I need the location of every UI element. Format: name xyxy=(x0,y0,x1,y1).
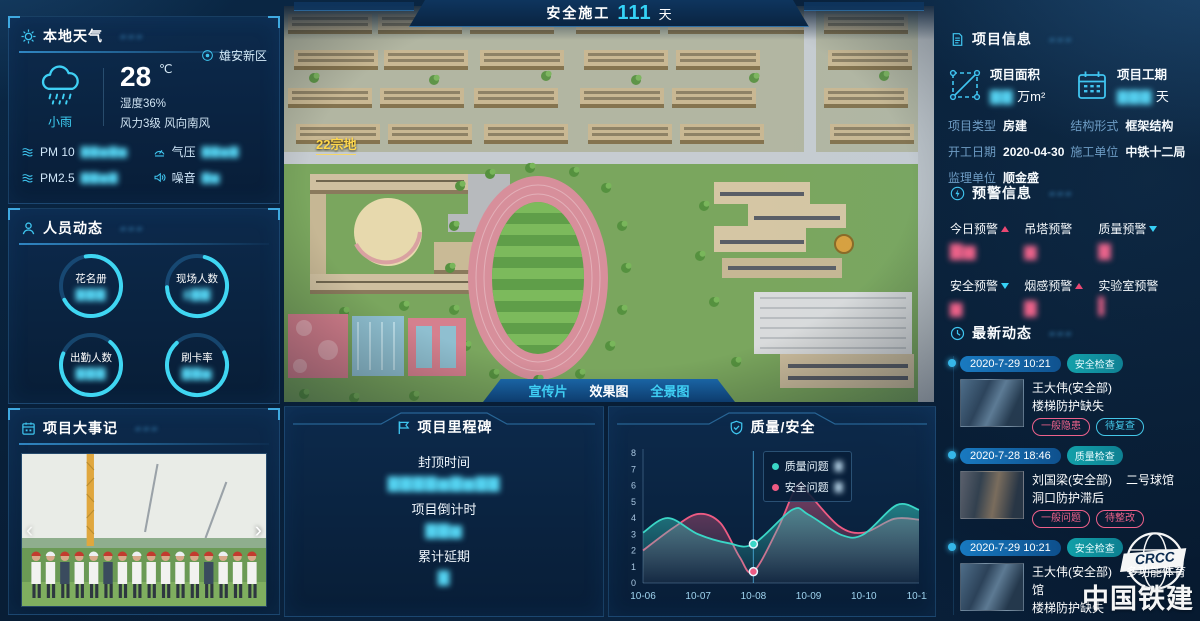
warning-item: 实验室预警▌ xyxy=(1098,277,1180,318)
svg-text:3: 3 xyxy=(631,529,636,539)
update-date: 2020-7-28 18:46 xyxy=(960,448,1061,464)
panel-warnings: 预警信息 ▰▰▰ 今日预警▇▆吊塔预警▆质量预警▇安全预警▆烟感预警▇实验室预警… xyxy=(938,174,1192,312)
lightning-icon xyxy=(950,186,965,201)
field-label: 项目类型 xyxy=(948,117,996,134)
panel-milestone: 项目里程碑 封顶时间▇▇▇▇▆▇▆▇▇项目倒计时▇▇▆累计延期▇ xyxy=(284,406,604,617)
warning-value-masked: ▇▆ xyxy=(950,241,1024,261)
update-type-badge: 质量检查 xyxy=(1067,446,1123,465)
sun-icon xyxy=(21,29,36,44)
haze-icon xyxy=(21,145,34,158)
svg-text:10-08: 10-08 xyxy=(741,591,767,602)
project-field: 施工单位中铁十二局 xyxy=(1070,143,1185,160)
field-value: 框架结构 xyxy=(1125,117,1173,134)
region-chip[interactable]: 雄安新区 xyxy=(201,47,267,64)
personnel-ring: 刷卡率▇▇▆ xyxy=(162,330,232,400)
tooltip-row: 质量问题▇ xyxy=(772,458,844,474)
project-field: 结构形式框架结构 xyxy=(1070,117,1185,134)
personnel-ring: 花名册▇▇▇ xyxy=(56,251,126,321)
milestone-value-masked: ▇▇▇▇▆▇▆▇▇ xyxy=(388,474,501,492)
warning-value-masked: ▇ xyxy=(1098,241,1180,261)
tooltip-value-masked: ▇ xyxy=(835,482,844,493)
project-stat: 项目工期▇▇▇ 天 xyxy=(1075,64,1188,105)
tooltip-row: 安全问题▇ xyxy=(772,479,844,495)
panel-quality-safety: 质量/安全 01234567810-0610-0710-0810-0910-10… xyxy=(608,406,936,617)
svg-text:1: 1 xyxy=(631,562,636,572)
field-label: 开工日期 xyxy=(948,143,996,160)
tag-badge: 一般隐患 xyxy=(1032,418,1090,436)
milestone-value-masked: ▇ xyxy=(438,568,451,586)
personnel-rings: 花名册▇▇▇现场人数▮▇▇出勤人数▇▇▇刷卡率▇▇▆ xyxy=(9,251,279,400)
timeline-dot xyxy=(948,451,956,459)
ring-value-masked: ▇▇▇ xyxy=(76,366,107,380)
panel-title: 本地天气 xyxy=(43,26,103,46)
calendar-page-icon xyxy=(21,421,36,436)
svg-text:5: 5 xyxy=(631,497,636,507)
milestone-item: 累计延期▇ xyxy=(418,546,470,586)
carousel-next-arrow[interactable]: › xyxy=(255,519,262,541)
warning-label: 安全预警 xyxy=(950,277,998,294)
update-date: 2020-7-29 10:21 xyxy=(960,540,1061,556)
metric-value-masked: ▇▆ xyxy=(202,171,221,184)
view-button-全景图[interactable]: 全景图 xyxy=(651,381,690,400)
field-label: 施工单位 xyxy=(1070,143,1118,160)
project-stats: 项目面积▇▇ 万m²项目工期▇▇▇ 天 xyxy=(938,54,1192,105)
field-value: 2020-04-30 xyxy=(1003,145,1064,159)
update-type-badge: 安全检查 xyxy=(1067,354,1123,373)
metric-label: PM2.5 xyxy=(40,171,75,185)
ring-value-masked: ▇▇▇ xyxy=(76,287,107,301)
svg-text:10-06: 10-06 xyxy=(630,591,656,602)
ring-value-masked: ▇▇▆ xyxy=(182,366,213,380)
ring-label: 出勤人数 xyxy=(70,350,112,365)
tag-badge: 待复查 xyxy=(1096,418,1144,436)
pressure-icon xyxy=(153,145,166,158)
legend-label: 质量问题 xyxy=(785,458,829,474)
calendar-icon xyxy=(1075,68,1109,102)
weather-metric: 噪音▇▆ xyxy=(153,169,267,186)
warning-label: 吊塔预警 xyxy=(1024,220,1072,237)
weather-metrics: PM 10▇▇▆▇▆气压▇▇▆▇PM2.5▇▇▆▇噪音▇▆ xyxy=(9,131,279,186)
project-field: 开工日期2020-04-30 xyxy=(948,143,1064,160)
safe-days-label: 安全施工 xyxy=(546,3,610,23)
stat-unit: 天 xyxy=(1152,89,1169,104)
update-issue: 洞口防护滞后 xyxy=(1032,489,1174,507)
shield-check-icon xyxy=(729,420,744,435)
milestone-label: 封顶时间 xyxy=(418,452,470,471)
field-label: 结构形式 xyxy=(1070,117,1118,134)
tooltip-value-masked: ▇ xyxy=(835,461,844,472)
weather-condition: 小雨 xyxy=(17,113,103,130)
project-field: 项目类型房建 xyxy=(948,117,1064,134)
warning-label: 质量预警 xyxy=(1098,220,1146,237)
svg-text:7: 7 xyxy=(631,464,636,474)
update-place: 二号球馆 xyxy=(1126,473,1174,487)
document-icon xyxy=(950,32,965,47)
update-entry[interactable]: 2020-7-28 18:46质量检查刘国梁(安全部)二号球馆洞口防护滞后一般问… xyxy=(946,446,1192,528)
aerial-view[interactable]: 22宗地 宣传片效果图全景图 xyxy=(284,6,934,402)
legend-label: 安全问题 xyxy=(785,479,829,495)
svg-text:10-09: 10-09 xyxy=(796,591,822,602)
ring-label: 花名册 xyxy=(75,271,107,286)
top-banner: 安全施工 111 天 xyxy=(284,0,934,26)
panel-title: 人员动态 xyxy=(43,218,103,238)
flag-icon xyxy=(396,420,411,435)
safe-days-value: 111 xyxy=(617,2,651,25)
chart-tooltip: 质量问题▇安全问题▇ xyxy=(763,451,853,502)
land-parcel-label: 22宗地 xyxy=(316,134,356,155)
location-pin-icon xyxy=(201,49,214,62)
metric-value-masked: ▇▇▆▇ xyxy=(81,171,119,184)
personnel-ring: 出勤人数▇▇▇ xyxy=(56,330,126,400)
legend-dot xyxy=(772,484,779,491)
svg-text:10-10: 10-10 xyxy=(851,591,877,602)
safe-days-unit: 天 xyxy=(659,4,672,23)
milestone-label: 项目倒计时 xyxy=(411,499,476,518)
panel-personnel: 人员动态 ▰▰▰ 花名册▇▇▇现场人数▮▇▇出勤人数▇▇▇刷卡率▇▇▆ xyxy=(8,208,280,404)
panel-title: 质量/安全 xyxy=(751,417,816,437)
person-icon xyxy=(21,221,36,236)
update-thumbnail[interactable] xyxy=(960,563,1024,611)
view-button-效果图[interactable]: 效果图 xyxy=(589,381,628,400)
temperature-value: 28 xyxy=(120,61,151,92)
panel-title: 最新动态 xyxy=(972,323,1032,343)
aerial-render xyxy=(284,6,934,402)
svg-text:10-11: 10-11 xyxy=(907,591,927,602)
crcc-logo: CRCC 中国铁建 xyxy=(1082,526,1200,618)
wind: 风力3级 风向南风 xyxy=(120,115,210,131)
milestone-label: 累计延期 xyxy=(418,546,470,565)
svg-text:8: 8 xyxy=(631,448,636,458)
warning-value-masked: ▆ xyxy=(1024,241,1098,261)
metric-label: 噪音 xyxy=(172,169,196,186)
carousel-prev-arrow[interactable]: ‹ xyxy=(26,519,33,541)
stat-value-masked: ▇▇▇ xyxy=(1117,88,1152,104)
view-button-宣传片[interactable]: 宣传片 xyxy=(528,381,567,400)
update-person: 王大伟(安全部) xyxy=(1032,381,1112,395)
stat-unit: 万m² xyxy=(1014,89,1046,104)
panel-title: 项目大事记 xyxy=(43,418,118,438)
update-person: 刘国梁(安全部) xyxy=(1032,473,1112,487)
legend-dot xyxy=(772,463,779,470)
warning-item: 安全预警▆ xyxy=(950,277,1024,318)
milestone-list: 封顶时间▇▇▇▇▆▇▆▇▇项目倒计时▇▇▆累计延期▇ xyxy=(285,445,603,586)
clock-icon xyxy=(950,326,965,341)
warning-label: 今日预警 xyxy=(950,220,998,237)
stat-value-masked: ▇▇ xyxy=(990,88,1014,104)
warning-grid: 今日预警▇▆吊塔预警▆质量预警▇安全预警▆烟感预警▇实验室预警▌ xyxy=(938,208,1192,318)
update-date: 2020-7-29 10:21 xyxy=(960,356,1061,372)
metric-label: PM 10 xyxy=(40,145,75,159)
ring-label: 刷卡率 xyxy=(181,350,213,365)
update-entry[interactable]: 2020-7-29 10:21安全检查王大伟(安全部)楼梯防护缺失一般隐患待复查 xyxy=(946,354,1192,436)
field-value: 房建 xyxy=(1003,117,1027,134)
rain-cloud-icon xyxy=(37,93,83,110)
project-stat: 项目面积▇▇ 万m² xyxy=(948,64,1061,105)
stat-label: 项目工期 xyxy=(1117,64,1169,83)
trend-up-icon xyxy=(1075,283,1083,289)
field-value: 中铁十二局 xyxy=(1125,143,1185,160)
metric-value-masked: ▇▇▆▇▆ xyxy=(81,145,128,158)
warning-item: 质量预警▇ xyxy=(1098,220,1180,261)
group-photo xyxy=(22,454,266,606)
svg-text:4: 4 xyxy=(631,513,636,523)
ring-value-masked: ▮▇▇ xyxy=(183,287,211,301)
update-issue: 楼梯防护缺失 xyxy=(1032,397,1144,415)
area-icon xyxy=(948,68,982,102)
panel-title: 项目信息 xyxy=(972,29,1032,49)
update-thumbnail[interactable] xyxy=(960,471,1024,519)
stat-label: 项目面积 xyxy=(990,64,1045,83)
svg-text:2: 2 xyxy=(631,546,636,556)
milestone-photo[interactable]: ‹ › xyxy=(21,453,267,607)
weather-metric: 气压▇▇▆▇ xyxy=(153,143,267,160)
crcc-chinese-name: 中国铁建 xyxy=(1082,577,1194,616)
humidity: 湿度36% xyxy=(120,95,210,111)
warning-item: 今日预警▇▆ xyxy=(950,220,1024,261)
weather-metric: PM 10▇▇▆▇▆ xyxy=(21,143,153,160)
panel-title: 预警信息 xyxy=(972,183,1032,203)
panel-project-events: 项目大事记 ▰▰▰ ‹ › xyxy=(8,408,280,615)
view-switch-bar: 宣传片效果图全景图 xyxy=(483,379,735,402)
panel-title: 项目里程碑 xyxy=(418,417,493,437)
milestone-item: 封顶时间▇▇▇▇▆▇▆▇▇ xyxy=(388,452,501,492)
metric-label: 气压 xyxy=(172,143,196,160)
region-label: 雄安新区 xyxy=(219,47,267,64)
trend-down-icon xyxy=(1149,226,1157,232)
timeline-dot xyxy=(948,359,956,367)
weather-metric: PM2.5▇▇▆▇ xyxy=(21,169,153,186)
svg-text:10-07: 10-07 xyxy=(685,591,711,602)
warning-label: 烟感预警 xyxy=(1024,277,1072,294)
personnel-ring: 现场人数▮▇▇ xyxy=(162,251,232,321)
milestone-item: 项目倒计时▇▇▆ xyxy=(411,499,476,539)
update-thumbnail[interactable] xyxy=(960,379,1024,427)
panel-project-info: 项目信息 ▰▰▰ 项目面积▇▇ 万m²项目工期▇▇▇ 天 项目类型房建结构形式框… xyxy=(938,20,1192,170)
trend-down-icon xyxy=(1001,283,1009,289)
warning-item: 烟感预警▇ xyxy=(1024,277,1098,318)
milestone-value-masked: ▇▇▆ xyxy=(425,521,463,539)
dashboard: 安全施工 111 天 xyxy=(0,0,1200,621)
svg-text:0: 0 xyxy=(631,578,636,588)
haze-icon xyxy=(21,171,34,184)
temperature-unit: ℃ xyxy=(159,62,172,76)
panel-local-weather: 本地天气 ▰▰▰ 雄安新区 小雨 28 ℃ 湿度36% 风力3级 风向南风 PM… xyxy=(8,16,280,204)
timeline-dot xyxy=(948,543,956,551)
trend-up-icon xyxy=(1001,226,1009,232)
warning-label: 实验室预警 xyxy=(1098,277,1158,294)
svg-text:6: 6 xyxy=(631,481,636,491)
ring-label: 现场人数 xyxy=(176,271,218,286)
metric-value-masked: ▇▇▆▇ xyxy=(202,145,240,158)
warning-item: 吊塔预警▆ xyxy=(1024,220,1098,261)
quality-safety-chart[interactable]: 01234567810-0610-0710-0810-0910-1010-11质… xyxy=(617,441,927,609)
noise-icon xyxy=(153,171,166,184)
